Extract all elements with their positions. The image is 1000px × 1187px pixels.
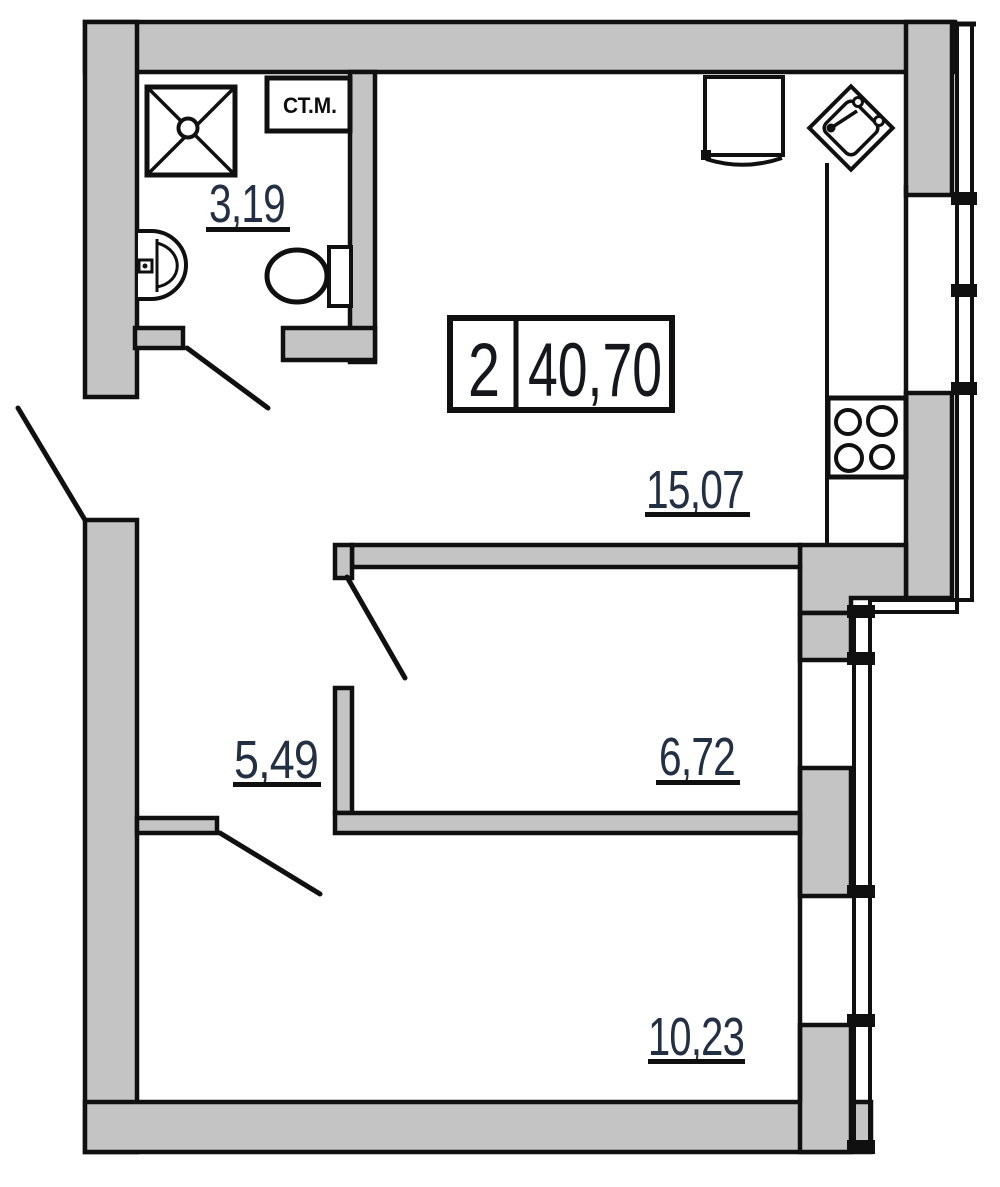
floor-plan-drawing: СТ.М. — [0, 0, 1000, 1187]
wall-top — [85, 22, 955, 72]
wall-bottom — [85, 1102, 871, 1152]
partition-bathroom-bottom — [283, 328, 375, 360]
area-label-livingroom: 10,23 — [648, 1007, 744, 1067]
wall-right-pier-c — [800, 1025, 851, 1152]
partition-bathroom-right — [350, 72, 375, 362]
partition-bedroom-door-post — [335, 545, 352, 578]
wall-left-lower — [85, 520, 137, 1152]
floor-plan-page: СТ.М. — [0, 0, 1000, 1187]
area-underline-bathroom — [206, 227, 290, 232]
window-mullion-tick — [847, 1140, 875, 1154]
window-mullion-tick — [847, 1014, 875, 1027]
window-mullion-tick — [847, 652, 875, 665]
summary-box: 2 40,70 — [450, 318, 672, 413]
door-swing-entrance — [18, 408, 85, 520]
summary-room-count: 2 — [468, 328, 500, 413]
summary-total-area: 40,70 — [528, 328, 662, 413]
washing-machine-box: СТ.М. — [267, 78, 350, 131]
area-label-hallway: 5,49 — [234, 730, 318, 790]
partition-bathroom-door-post-left — [135, 328, 183, 348]
wall-left-upper — [85, 22, 137, 397]
wall-right-pier-b — [800, 768, 851, 896]
window-mullion-tick — [847, 605, 875, 618]
toilet-icon — [267, 247, 351, 306]
door-swing-livingroom — [220, 833, 320, 894]
wall-right-pier-mid — [906, 393, 952, 598]
window-mullion-tick — [951, 192, 977, 205]
partition-livingroom-door-post — [137, 818, 217, 833]
kitchen-unit-icon — [701, 77, 783, 165]
area-label-bedroom: 6,72 — [659, 727, 735, 787]
room-area-labels: 3,19 15,07 5,49 6,72 10,23 — [206, 174, 750, 1067]
area-underline-kitchen — [645, 512, 750, 517]
washing-machine-label: СТ.М. — [283, 93, 337, 118]
partition-livingroom-top — [335, 813, 800, 833]
stove-icon — [828, 398, 906, 477]
area-underline-livingroom — [648, 1059, 745, 1064]
window-mullion-tick — [847, 885, 875, 898]
door-swing-bedroom — [347, 577, 405, 678]
window-mullion-tick — [951, 284, 977, 297]
window-mullion-tick — [951, 382, 977, 395]
area-underline-hallway — [233, 782, 321, 787]
door-swing-bathroom — [187, 348, 268, 408]
area-label-kitchen: 15,07 — [646, 460, 744, 520]
area-label-bathroom: 3,19 — [209, 174, 285, 234]
partition-bedroom-left — [335, 688, 352, 813]
wash-basin-icon — [138, 231, 186, 299]
wall-right-pier-a — [800, 613, 851, 660]
area-underline-bedroom — [656, 780, 740, 785]
wall-step-corner — [800, 545, 906, 613]
partition-bedroom-top — [352, 545, 800, 567]
kitchen-sink-icon — [809, 86, 892, 169]
wall-right-pier-top — [906, 22, 952, 195]
shower-icon — [147, 87, 235, 175]
